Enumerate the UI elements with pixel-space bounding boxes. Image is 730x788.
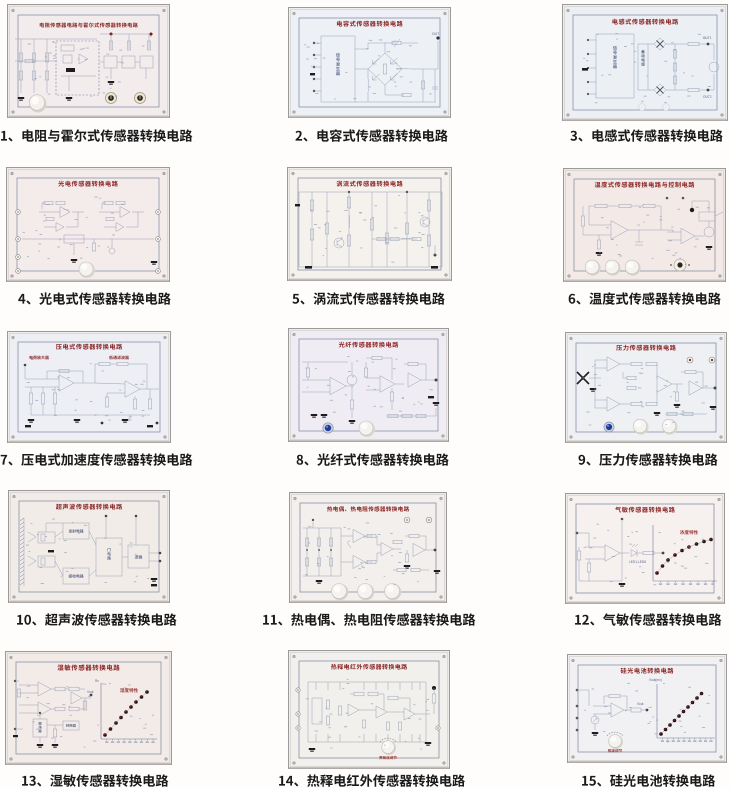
svg-text:OUT2: OUT2 [703, 95, 712, 99]
svg-text:Vout(mv): Vout(mv) [649, 678, 662, 682]
svg-text:LED1-LED8: LED1-LED8 [629, 560, 646, 564]
svg-text:OUT: OUT [432, 32, 439, 36]
svg-text:Rv: Rv [95, 679, 99, 683]
svg-text:Vout: Vout [87, 690, 93, 694]
svg-text:Vout: Vout [637, 702, 643, 706]
